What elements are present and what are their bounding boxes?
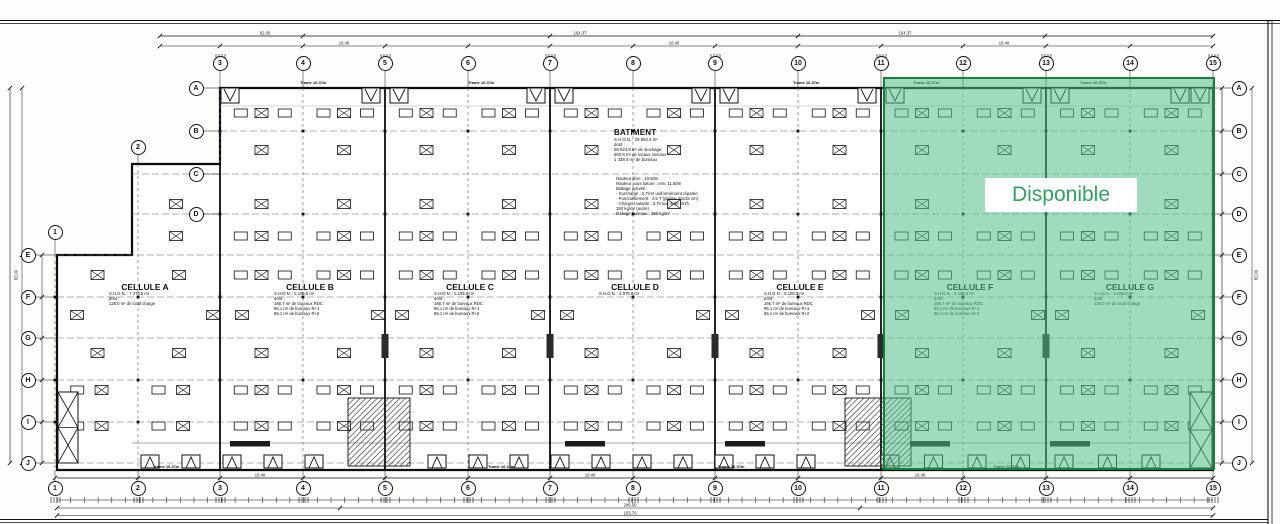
dimension-label: 16.40	[585, 473, 595, 478]
grid-bubble-top-col-11: 11	[874, 56, 889, 71]
grid-bubble-bottom-col-9: 9	[708, 481, 723, 496]
grid-bubble-right-row-J: J	[1232, 456, 1247, 471]
grid-bubble-bottom-col-14: 14	[1123, 481, 1138, 496]
grid-bubble-top-col-8: 8	[626, 56, 641, 71]
grid-bubble-top-col-3: 3	[213, 56, 228, 71]
available-zone-overlay[interactable]	[883, 77, 1215, 470]
trame-label: Trame 16.37m	[468, 80, 494, 85]
grid-bubble-col-2: 2	[131, 140, 146, 155]
cell-label-a-line: 128.0 m² de local charge	[109, 302, 215, 307]
grid-bubble-left-row-D: D	[189, 207, 204, 222]
cell-label-d: CELLULE DS.H.O.N. : 4 876.0 m²	[565, 283, 705, 297]
grid-bubble-right-row-A: A	[1232, 81, 1247, 96]
grid-bubble-bottom-col-6: 6	[461, 481, 476, 496]
grid-bubble-col-1: 1	[48, 225, 63, 240]
grid-bubble-top-col-9: 9	[708, 56, 723, 71]
grid-bubble-bottom-col-1: 1	[48, 481, 63, 496]
grid-bubble-left-row-E: E	[21, 248, 36, 263]
grid-bubble-top-col-7: 7	[543, 56, 558, 71]
grid-bubble-top-col-4: 4	[296, 56, 311, 71]
dimension-label: 82.00	[14, 270, 19, 280]
grid-bubble-top-col-6: 6	[461, 56, 476, 71]
grid-bubble-bottom-col-13: 13	[1039, 481, 1054, 496]
dimension-label: 82.00	[260, 31, 270, 36]
grid-bubble-bottom-col-4: 4	[296, 481, 311, 496]
grid-bubble-right-row-I: I	[1232, 415, 1247, 430]
grid-bubble-bottom-col-7: 7	[543, 481, 558, 496]
dimension-label: 246.50	[624, 503, 637, 508]
dimension-label: 16.40	[999, 41, 1009, 46]
grid-bubble-top-col-12: 12	[956, 56, 971, 71]
dimension-label: 16.40	[339, 41, 349, 46]
building-specs-block: Hauteur libre : 10.50mHauteur sous toitu…	[616, 176, 698, 216]
grid-bubble-left-row-B: B	[189, 124, 204, 139]
grid-bubble-bottom-col-12: 12	[956, 481, 971, 496]
dimension-label: 163.70	[624, 511, 637, 516]
grid-bubble-right-row-B: B	[1232, 124, 1247, 139]
grid-bubble-top-col-13: 13	[1039, 56, 1054, 71]
cell-label-c-line: 96.1 m² de bureaux R+2	[434, 312, 540, 317]
grid-bubble-top-col-10: 10	[791, 56, 806, 71]
grid-bubble-right-row-G: G	[1232, 331, 1247, 346]
grid-bubble-top-col-15: 15	[1206, 56, 1221, 71]
grid-bubble-left-row-J: J	[21, 456, 36, 471]
available-label[interactable]: Disponible	[985, 178, 1137, 212]
building-specs-block-line: Dallage bureaux : 350 kg/m²	[616, 211, 698, 216]
grid-bubble-bottom-col-2: 2	[131, 481, 146, 496]
grid-bubble-right-row-E: E	[1232, 248, 1247, 263]
grid-bubble-right-row-C: C	[1232, 167, 1247, 182]
batiment-info-block: BATIMENTS.H.O.N. : 29 983.6 m²dont :28 9…	[614, 128, 666, 162]
cell-label-d-line: S.H.O.N. : 4 876.0 m²	[599, 292, 705, 297]
batiment-info-block-line: 1 438.4 m² de bureaux	[614, 157, 666, 162]
grid-bubble-right-row-D: D	[1232, 207, 1247, 222]
grid-bubble-bottom-col-3: 3	[213, 481, 228, 496]
dimension-label: 16.40	[669, 41, 679, 46]
cell-label-a: CELLULE AS.H.O.N. : 7 373.5 m²dont :128.…	[75, 283, 215, 307]
grid-bubble-left-row-C: C	[189, 167, 204, 182]
grid-bubble-left-row-G: G	[21, 331, 36, 346]
grid-bubble-bottom-col-8: 8	[626, 481, 641, 496]
cell-label-e: CELLULE ES.H.O.N. : 5 195.5 m²dont :166.…	[730, 283, 870, 317]
dimension-label: 82.00	[1254, 270, 1259, 280]
grid-bubble-top-col-14: 14	[1123, 56, 1138, 71]
grid-bubble-bottom-col-11: 11	[874, 481, 889, 496]
grid-bubble-bottom-col-10: 10	[791, 481, 806, 496]
batiment-info-block-title: BATIMENT	[614, 128, 666, 137]
grid-bubble-left-row-I: I	[21, 415, 36, 430]
dimension-label: 164.37	[899, 31, 912, 36]
grid-bubble-left-row-H: H	[21, 373, 36, 388]
grid-bubble-right-row-H: H	[1232, 373, 1247, 388]
cell-label-b: CELLULE BS.H.O.N. : 5 195.5 m²dont :166.…	[240, 283, 380, 317]
cell-label-c: CELLULE CS.H.O.N. : 5 195.0 m²dont :166.…	[400, 283, 540, 317]
cell-label-b-line: 96.1 m² de bureaux R+2	[274, 312, 380, 317]
grid-bubble-right-row-F: F	[1232, 290, 1247, 305]
dimension-label: 16.40	[915, 473, 925, 478]
trame-label: Trame 16.37m	[718, 464, 744, 469]
grid-bubble-top-col-5: 5	[378, 56, 393, 71]
trame-label: Trame 16.37m	[793, 80, 819, 85]
dimension-label: 164.37	[574, 31, 587, 36]
dimension-label: 16.40	[255, 473, 265, 478]
grid-bubble-left-row-A: A	[189, 81, 204, 96]
grid-bubble-bottom-col-5: 5	[378, 481, 393, 496]
cell-label-e-line: 96.1 m² de bureaux R+2	[764, 312, 870, 317]
floorplan-sheet: Disponible 34567891011121314151234567891…	[0, 0, 1280, 524]
trame-label: Trame 16.37m	[488, 464, 514, 469]
grid-bubble-bottom-col-15: 15	[1206, 481, 1221, 496]
trame-label: Trame 16.37m	[300, 80, 326, 85]
trame-label: Trame 16.37m	[153, 464, 179, 469]
grid-bubble-left-row-F: F	[21, 290, 36, 305]
